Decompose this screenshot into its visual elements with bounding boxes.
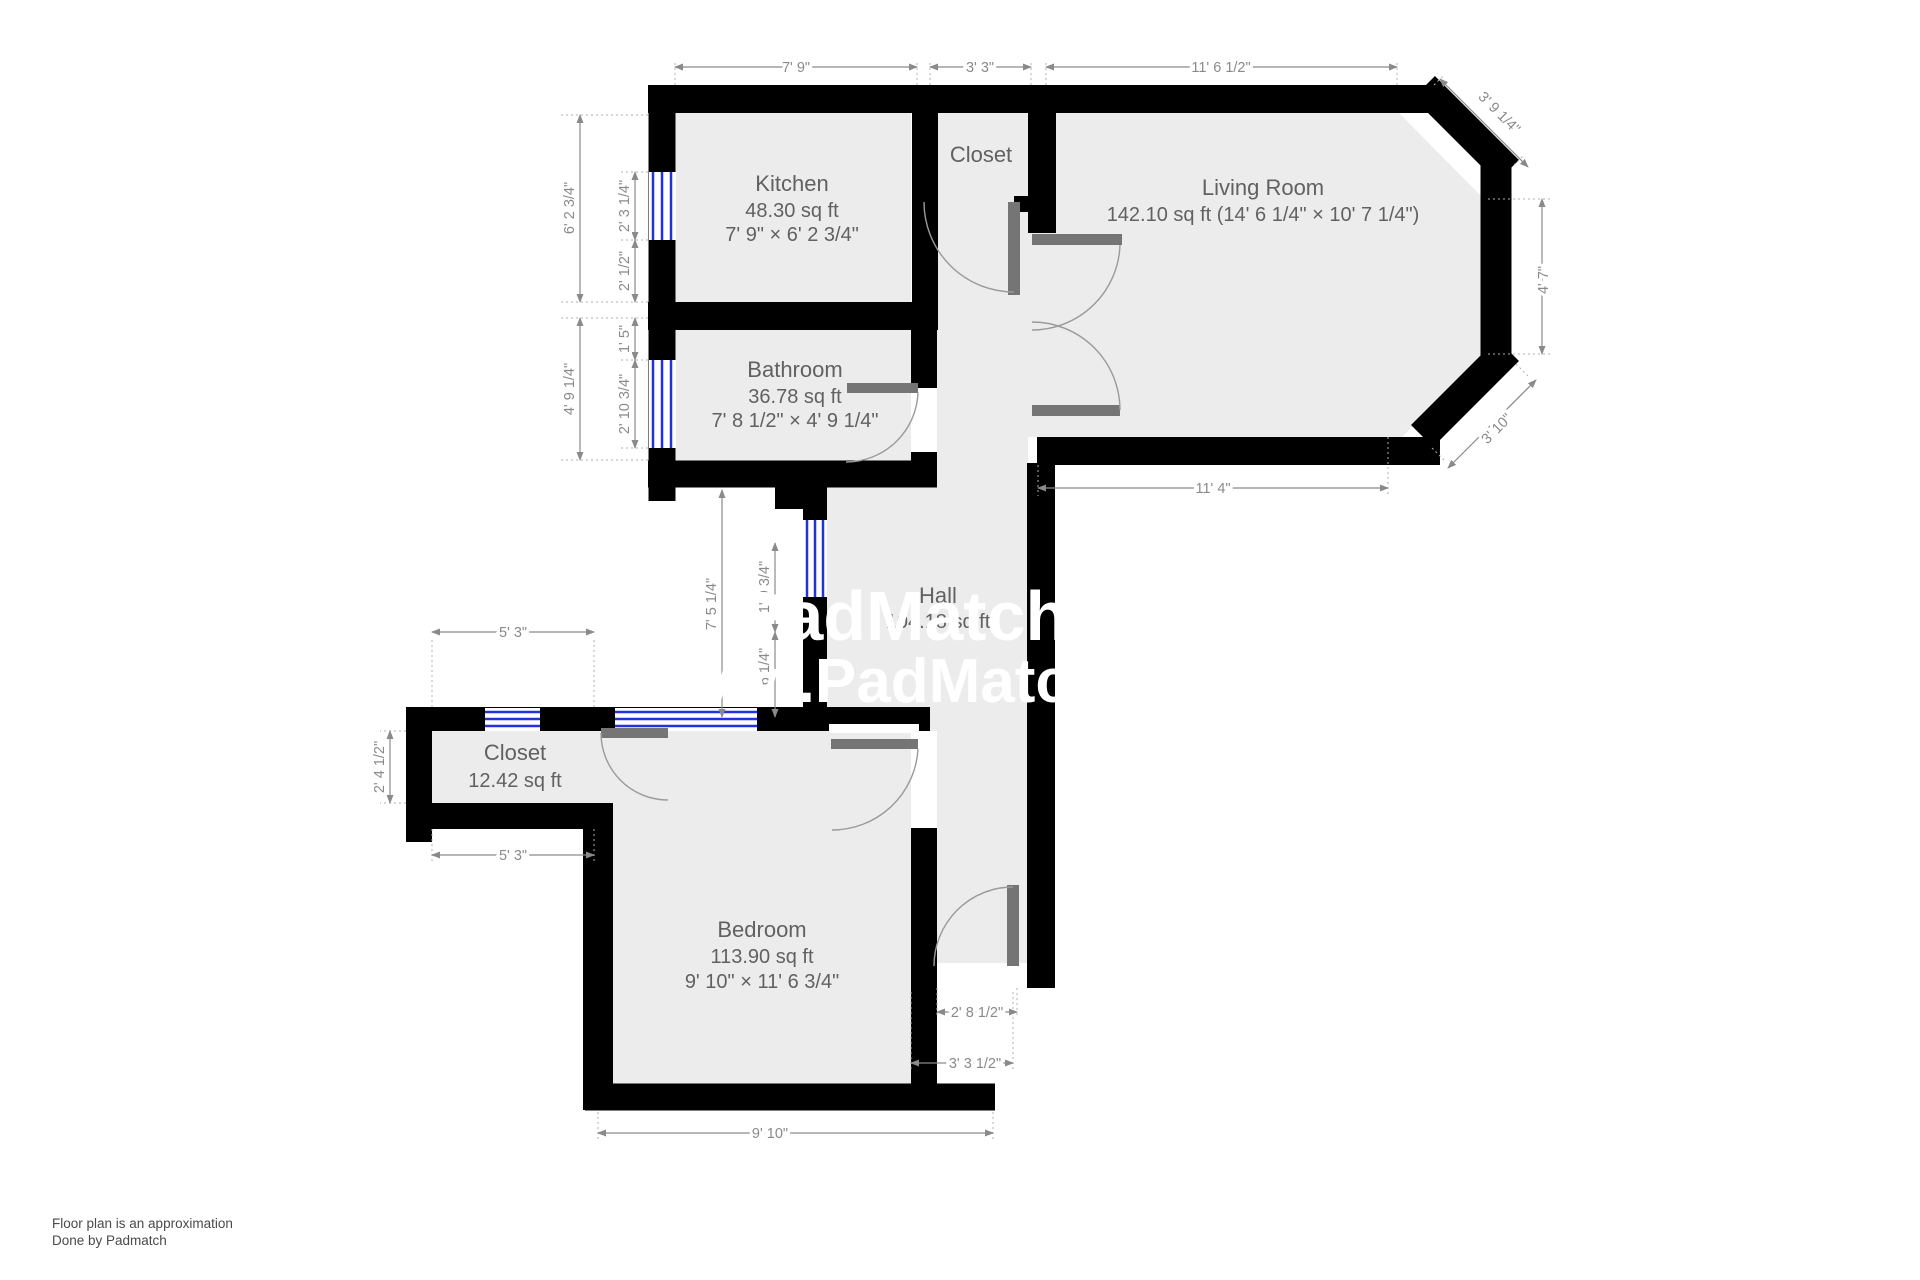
dim-kitchen-lower: 2' 1/2" xyxy=(617,251,633,291)
watermark: PadMatch R ww.PadMatchR xyxy=(703,577,1153,716)
bedroom-room xyxy=(613,731,911,1088)
floor-plan-drawing: 7' 9" 3' 3" 11' 6 1/2" 3' 9 1/4" 4' 7" 3… xyxy=(0,0,1920,1280)
kitchen-size: 7' 9" × 6' 2 3/4" xyxy=(725,224,859,246)
door-leaf xyxy=(1008,202,1020,295)
window-icon xyxy=(485,708,540,731)
dim-top-closet: 3' 3" xyxy=(966,60,994,76)
closet-top-label: Closet xyxy=(950,142,1012,167)
dim-closet-height: 2' 4 1/2" xyxy=(372,741,388,793)
dim-bath-window: 2' 10 3/4" xyxy=(617,374,633,434)
dim-vestibule-width: 3' 3 1/2" xyxy=(949,1056,1001,1072)
watermark-line2: ww.PadMatchR xyxy=(703,647,1153,716)
footer: Floor plan is an approximation Done by P… xyxy=(52,1216,233,1248)
bedroom-label: Bedroom xyxy=(717,917,806,942)
bathroom-size: 7' 8 1/2" × 4' 9 1/4" xyxy=(712,410,879,432)
bedroom-size: 9' 10" × 11' 6 3/4" xyxy=(685,971,839,993)
bedroom-area: 113.90 sq ft xyxy=(710,946,813,968)
window-icon xyxy=(649,360,676,448)
hall-vestibule xyxy=(937,830,1018,963)
door-leaf xyxy=(1007,885,1019,966)
watermark-line1: PadMatch R xyxy=(738,577,1139,655)
floor-plan-canvas: 7' 9" 3' 3" 11' 6 1/2" 3' 9 1/4" 4' 7" 3… xyxy=(0,0,1920,1280)
dim-chamfer-bottom: 3' 10" xyxy=(1479,411,1516,448)
closet-low-label: Closet xyxy=(484,740,546,765)
door-leaf xyxy=(1032,405,1120,416)
door-leaf xyxy=(831,739,918,749)
dim-right-side: 4' 7" xyxy=(1536,266,1552,294)
bathroom-label: Bathroom xyxy=(747,357,842,382)
dim-entry-width: 2' 8 1/2" xyxy=(951,1005,1003,1021)
door-leaf xyxy=(601,728,668,738)
dim-top-kitchen: 7' 9" xyxy=(782,60,810,76)
dim-bedroom-width: 9' 10" xyxy=(752,1126,788,1142)
living-room-area: 142.10 sq ft (14' 6 1/4" × 10' 7 1/4") xyxy=(1107,204,1420,226)
dim-hall-height: 7' 5 1/4" xyxy=(704,578,720,630)
dim-closet-bottom-w: 5' 3" xyxy=(499,848,527,864)
window-icon xyxy=(649,172,676,240)
door-opening xyxy=(829,724,919,733)
kitchen-area: 48.30 sq ft xyxy=(745,200,839,222)
kitchen-label: Kitchen xyxy=(755,171,828,196)
dim-bath-upper: 1' 5" xyxy=(617,325,633,353)
closet-low-area: 12.42 sq ft xyxy=(468,770,562,792)
footer-line1: Floor plan is an approximation xyxy=(52,1216,233,1231)
dim-living-bottom: 11' 4" xyxy=(1195,481,1230,497)
door-leaf xyxy=(1032,234,1122,245)
dim-kitchen-height: 6' 2 3/4" xyxy=(562,182,578,234)
bathroom-area: 36.78 sq ft xyxy=(748,386,842,408)
dim-kitchen-window: 2' 3 1/4" xyxy=(617,180,633,232)
living-room-label: Living Room xyxy=(1202,175,1324,200)
door-leaf xyxy=(847,383,918,393)
dim-top-living: 11' 6 1/2" xyxy=(1191,60,1250,76)
footer-line2: Done by Padmatch xyxy=(52,1233,167,1248)
dim-bath-height: 4' 9 1/4" xyxy=(562,363,578,415)
dim-closet-top-w: 5' 3" xyxy=(499,625,527,641)
living-room xyxy=(1028,113,1481,437)
